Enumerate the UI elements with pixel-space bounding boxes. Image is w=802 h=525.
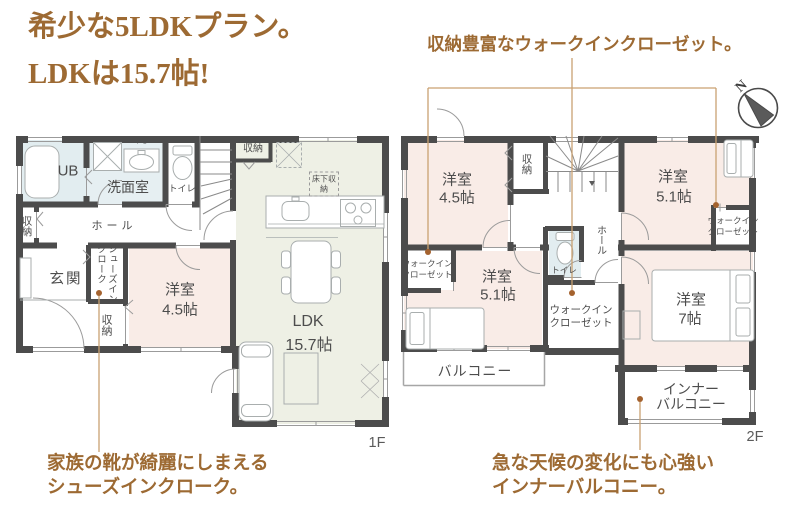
room-size-yoshitsu51-sw: 5.1帖 bbox=[480, 284, 516, 305]
label-layer: 希少な5LDKプラン。 LDKは15.7帖! 収納豊富なウォークインクローゼット… bbox=[0, 0, 802, 525]
room-label-ps: PS bbox=[137, 137, 148, 146]
room-label-underfloor-storage: 床下収納 bbox=[309, 172, 339, 197]
room-label-inner-balcony-line2: バルコニー bbox=[656, 394, 726, 414]
room-size-yoshitsu45-2f: 4.5帖 bbox=[439, 187, 475, 208]
room-label-toilet-1f: トイレ bbox=[168, 182, 195, 195]
room-label-yoshitsu7: 洋室 bbox=[676, 289, 706, 310]
room-size-yoshitsu51-ne: 5.1帖 bbox=[656, 186, 692, 207]
headline: 希少な5LDKプラン。 LDKは15.7帖! bbox=[28, 4, 307, 98]
compass-north-label: N bbox=[733, 78, 751, 97]
headline-line2: LDKは15.7帖! bbox=[28, 51, 307, 98]
headline-line1: 希少な5LDKプラン。 bbox=[28, 4, 307, 51]
room-label-wic-ne: ウォークインクローゼット bbox=[706, 216, 760, 237]
room-label-washroom: 洗面室 bbox=[107, 177, 149, 197]
room-label-balcony: バルコニー bbox=[438, 361, 513, 381]
callout-wic: 収納豊富なウォークインクローゼット。 bbox=[427, 31, 742, 56]
room-label-ub: UB bbox=[58, 163, 79, 180]
room-label-closet-hall: 収納 bbox=[20, 216, 35, 237]
room-label-toilet-2f: トイレ bbox=[551, 264, 577, 276]
room-label-yoshitsu51-ne: 洋室 bbox=[658, 166, 688, 187]
floor2-label: 2F bbox=[747, 429, 764, 445]
room-label-genkan: 玄関 bbox=[50, 268, 83, 289]
floor1-label: 1F bbox=[369, 435, 386, 451]
room-size-yoshitsu-1f: 4.5帖 bbox=[162, 299, 198, 320]
caption-shoes-line2: シューズインクローク。 bbox=[47, 476, 268, 500]
room-size-yoshitsu7: 7帖 bbox=[678, 308, 701, 329]
caption-inner-balcony-line1: 急な天候の変化にも心強い bbox=[492, 452, 714, 476]
room-label-wic-center: ウォークインクローゼット bbox=[548, 304, 614, 330]
room-label-closet-2f: 収納 bbox=[520, 154, 535, 175]
room-label-hall-1f: ホール bbox=[92, 217, 137, 233]
room-size-ldk: 15.7帖 bbox=[285, 331, 332, 355]
room-label-shoes-in-cloak: シューズインクローク bbox=[95, 244, 117, 308]
room-label-yoshitsu-1f: 洋室 bbox=[165, 279, 195, 300]
caption-inner-balcony-line2: インナーバルコニー。 bbox=[492, 476, 714, 500]
room-label-closet-genkan: 収納 bbox=[98, 314, 114, 336]
floor-plan-page: 希少な5LDKプラン。 LDKは15.7帖! 収納豊富なウォークインクローゼット… bbox=[0, 0, 802, 525]
room-label-wic-west: ウォークインクローゼット bbox=[400, 259, 454, 280]
caption-shoes-line1: 家族の靴が綺麗にしまえる bbox=[47, 452, 268, 476]
caption-shoes: 家族の靴が綺麗にしまえる シューズインクローク。 bbox=[47, 452, 268, 500]
room-label-hall-2f: ホール bbox=[593, 225, 608, 255]
room-label-ldk: LDK bbox=[292, 313, 323, 331]
room-label-closet-ldk: 収納 bbox=[243, 140, 263, 155]
caption-inner-balcony: 急な天候の変化にも心強い インナーバルコニー。 bbox=[492, 452, 714, 500]
